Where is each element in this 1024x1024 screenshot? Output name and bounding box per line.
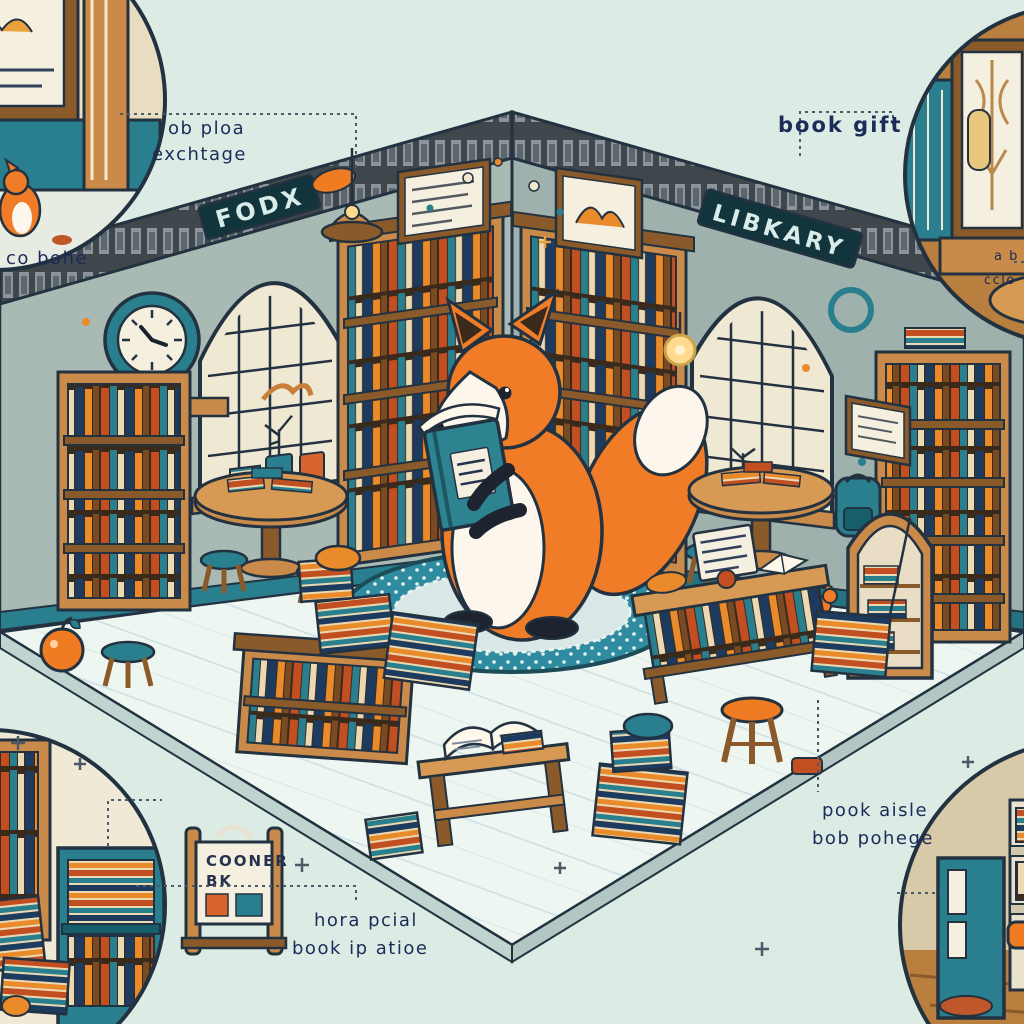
scene-canvas: FODX LIBKARY (0, 0, 1024, 1024)
corner-sign-line1: COONER (206, 852, 289, 870)
framed-poster-left (398, 159, 490, 244)
label-bottom-right-2: bob pohege (812, 828, 934, 849)
label-bottom-right-1: pook aisle (822, 800, 928, 821)
label-bottom-center-1: hora pcial (314, 910, 418, 931)
label-top-left-1: ob ploa (168, 118, 245, 139)
label-top-left-2: exchtage (152, 144, 247, 165)
label-right-edge-1: a b (994, 249, 1019, 264)
framed-poster-far-right (846, 396, 910, 465)
label-left-edge: co bohe (6, 248, 88, 269)
fox-foot-right (526, 617, 578, 639)
library-illustration: FODX LIBKARY (0, 0, 1024, 1024)
label-bottom-center-2: book ip atioe (292, 938, 428, 959)
framed-poster-right (556, 168, 642, 258)
fox-eye (499, 387, 512, 400)
label-top-right: book gift (778, 113, 903, 137)
books-on-top (905, 328, 965, 348)
corner-sign-line2: BK (206, 872, 233, 890)
bookshelf-far-left (58, 372, 190, 610)
label-right-edge-2: cclo (984, 273, 1016, 288)
